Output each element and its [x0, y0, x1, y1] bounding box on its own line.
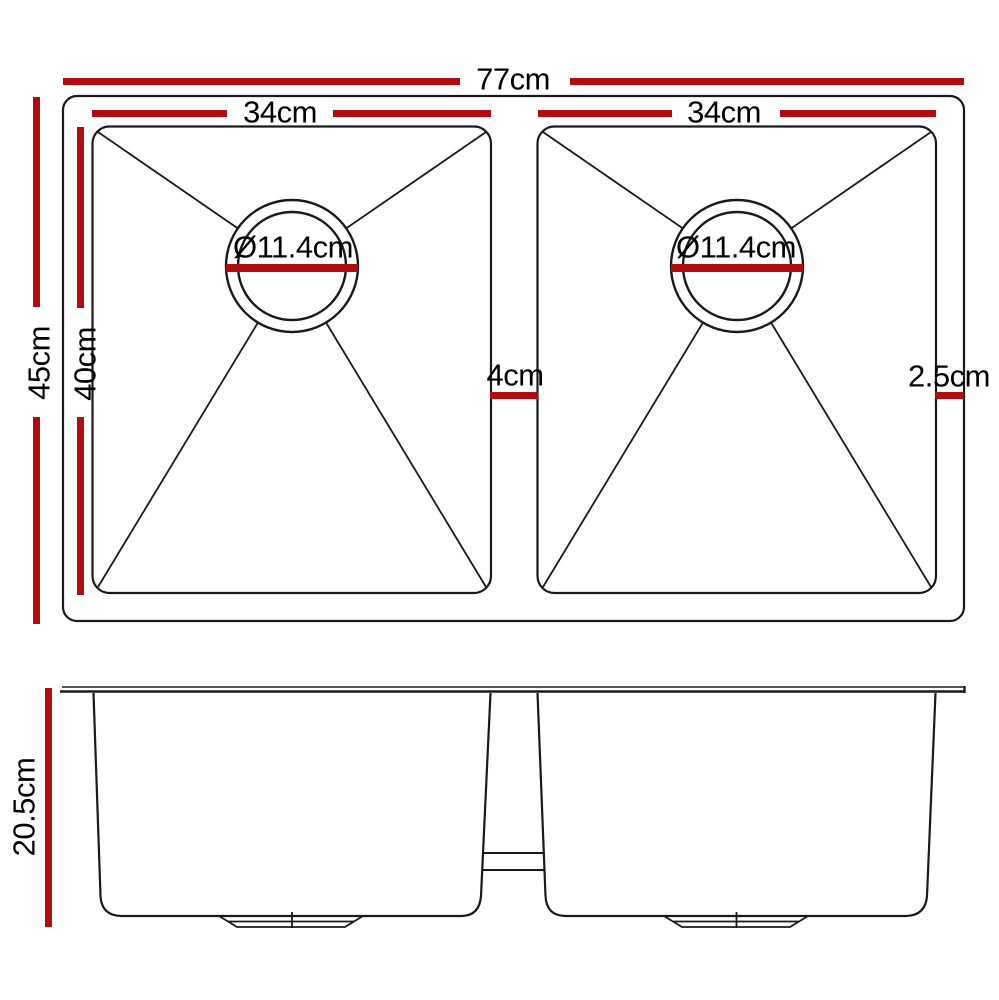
left-bowl-width-label: 34cm: [243, 97, 317, 128]
side-view-right-bowl-outline: [538, 693, 936, 916]
side-view-left-drain: [219, 912, 363, 928]
left-bowl-width-bar-a: [92, 110, 227, 117]
right-edge-offset-label: 2.5cm: [908, 361, 990, 392]
bowl-depth-bar-bottom: [77, 417, 84, 595]
overall-depth-bar-bottom: [33, 417, 40, 624]
overall-depth-bar-top: [33, 97, 40, 307]
sink-line-drawing: [0, 0, 999, 1000]
right-bowl-width-bar-a: [538, 110, 672, 117]
top-view-right-bowl: [538, 127, 937, 594]
bowl-gap-label: 4cm: [486, 360, 543, 391]
left-drain-diameter-bar: [226, 264, 358, 272]
left-bowl-width-bar-b: [333, 110, 491, 117]
side-view-left-bowl-outline: [94, 693, 491, 916]
right-drain-diameter-bar: [671, 264, 803, 272]
side-view-right-drain: [664, 912, 808, 928]
bowl-depth-bar-top: [77, 127, 84, 308]
sink-dimension-diagram: 77cm 34cm 34cm 45cm 40cm Ø11.4cm Ø11.4cm…: [0, 0, 999, 1000]
side-height-label: 20.5cm: [9, 758, 40, 857]
left-drain-diameter-label: Ø11.4cm: [233, 232, 353, 263]
bowl-depth-label: 40cm: [70, 327, 101, 401]
right-bowl-width-bar-b: [780, 110, 936, 117]
right-bowl-width-label: 34cm: [687, 97, 761, 128]
side-height-bar: [45, 688, 52, 927]
bowl-gap-bar: [490, 392, 538, 399]
top-view-left-bowl: [93, 127, 492, 594]
right-drain-diameter-label: Ø11.4cm: [676, 232, 796, 263]
overall-width-label: 77cm: [476, 64, 550, 95]
overall-width-bar-left: [63, 78, 460, 85]
overall-width-bar-right: [570, 78, 964, 85]
side-view-waste-pipe-lines: [483, 853, 545, 870]
overall-depth-label: 45cm: [24, 326, 55, 400]
